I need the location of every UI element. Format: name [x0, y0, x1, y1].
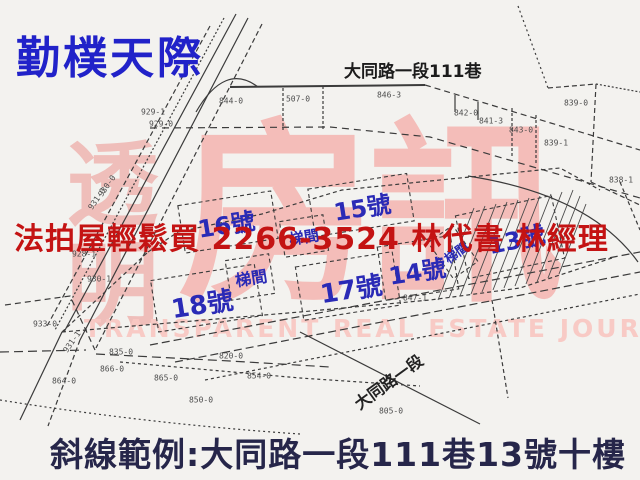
parcel-number: 850-0	[189, 396, 213, 405]
parcel-number: 933-0	[33, 320, 57, 329]
parcel-number: 929-1	[141, 108, 165, 117]
parcel-number: 844-0	[219, 97, 243, 106]
unit-number: 梯間	[233, 263, 268, 292]
parcel-number: 847-1	[403, 294, 427, 303]
parcel-number: 805-0	[379, 407, 403, 416]
parcel-number: 843-0	[509, 126, 533, 135]
parcel-number: 929-0	[149, 120, 173, 129]
street-label-top: 大同路一段111巷	[344, 57, 482, 82]
bottom-caption: 斜線範例:大同路一段111巷13號十樓	[50, 428, 626, 476]
parcel-number: 865-0	[154, 374, 178, 383]
parcel-number: 854-0	[247, 372, 271, 381]
cadastral-map-screen: 透明 房訊 TRANSPARENT REAL ESTATE JOURNAL	[0, 0, 640, 480]
parcel-number: 864-0	[52, 377, 76, 386]
parcel-number: 842-0	[454, 109, 478, 118]
parcel-number: 820-0	[219, 352, 243, 361]
parcel-number: 835-0	[109, 348, 133, 357]
parcel-number: 839-1	[544, 139, 568, 148]
parcel-number: 866-0	[100, 365, 124, 374]
overlay-ad-text: 法拍屋輕鬆買 2266-3524 林代書 林經理	[14, 214, 609, 258]
parcel-number: 839-0	[564, 99, 588, 108]
parcel-number: 841-3	[479, 117, 503, 126]
page-title: 勤樸天際	[16, 22, 204, 86]
parcel-number: 930-1	[87, 275, 111, 284]
parcel-number: 838-1	[609, 176, 633, 185]
parcel-number: 507-0	[286, 95, 310, 104]
parcel-number: 846-3	[377, 91, 401, 100]
